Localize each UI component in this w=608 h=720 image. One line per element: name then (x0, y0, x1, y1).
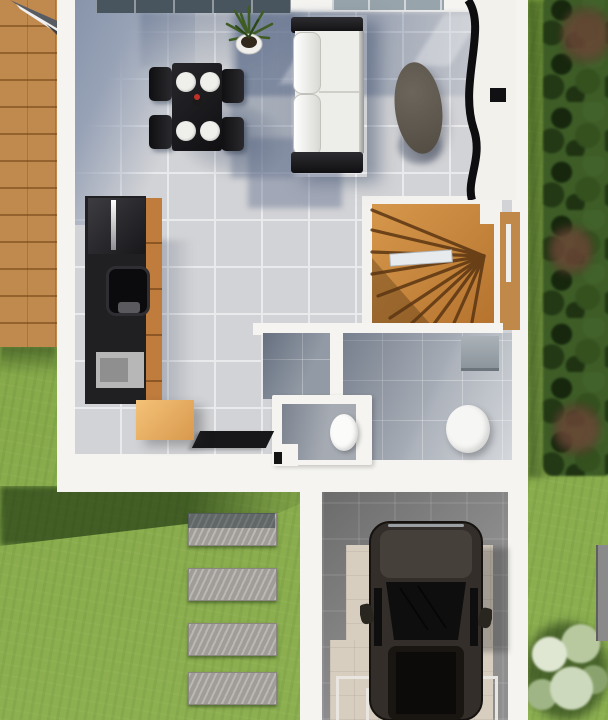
hallway-shadow (263, 333, 333, 399)
plate (200, 72, 220, 92)
floor-plan-render (0, 0, 608, 720)
deck-shadow-on-lawn (0, 345, 57, 375)
plate (200, 121, 220, 141)
dining-chair (221, 69, 244, 103)
sofa-back-cushion (293, 94, 321, 156)
dining-chair (149, 67, 172, 101)
dining-chair (221, 117, 244, 151)
kitchen-hob-inner (100, 358, 128, 382)
blossom-tree (520, 614, 608, 720)
kitchen-island-box (136, 400, 194, 440)
hedge-bloom (548, 220, 594, 280)
wooden-deck (0, 0, 57, 347)
stepping-stone (188, 672, 277, 705)
stair-landing-rail (506, 224, 511, 282)
table-vase-flower (194, 94, 200, 100)
sofa (291, 15, 367, 177)
hedge-bloom (552, 398, 602, 460)
sofa-seat-split (319, 91, 361, 93)
kitchen-upper-cabinet (88, 198, 145, 254)
doormat (192, 431, 274, 448)
stepping-stone-shadow (188, 513, 275, 528)
hall-partition-wall (330, 331, 343, 399)
wall-cabinet (461, 336, 499, 371)
cabinet-handle (111, 200, 116, 250)
potted-plant (222, 4, 278, 56)
suv-car (360, 518, 492, 720)
roof-corner-overhang (2, 0, 60, 38)
sofa-armrest (291, 152, 363, 173)
stepping-stone (188, 568, 277, 601)
toilet (330, 414, 358, 451)
hedge-bloom (560, 0, 608, 70)
plate (176, 121, 196, 141)
kitchen-faucet (118, 302, 140, 313)
garden-panel (596, 545, 608, 641)
curved-partition (452, 0, 516, 200)
stepping-stone (188, 623, 277, 656)
round-shower-basin (446, 405, 490, 453)
dining-chair (149, 115, 172, 149)
plate (176, 72, 196, 92)
winder-staircase (362, 196, 502, 334)
sofa-back-cushion (293, 32, 321, 94)
sofa-frame-edge (359, 31, 364, 153)
skylight-strip (332, 0, 444, 10)
wc-step-notch (274, 452, 282, 464)
